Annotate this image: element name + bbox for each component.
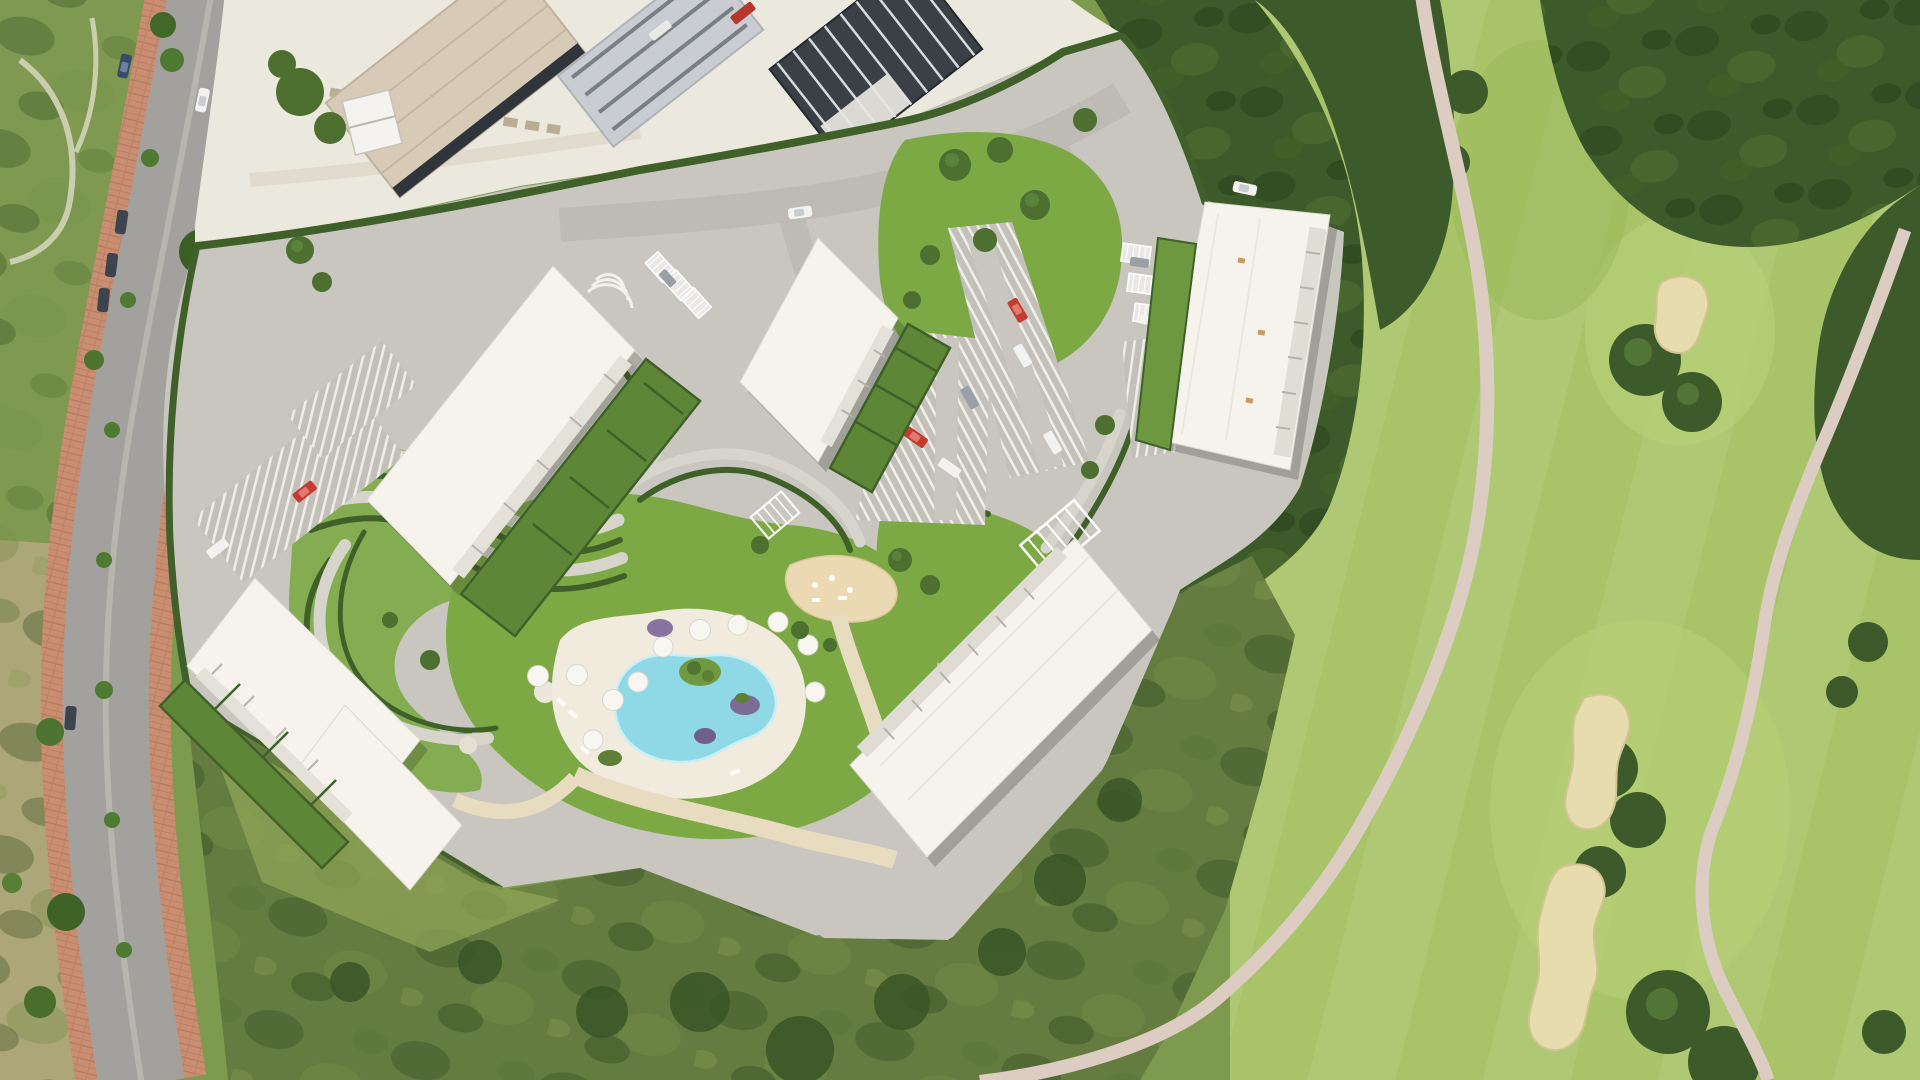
parasol	[728, 615, 748, 635]
car-dark	[64, 706, 77, 731]
pool-island	[679, 658, 721, 686]
site-plan-render	[0, 0, 1920, 1080]
parasol	[805, 682, 825, 702]
parasol	[528, 666, 549, 687]
parasol	[690, 620, 711, 641]
parasol	[768, 612, 788, 632]
pool-island-bush	[702, 670, 714, 682]
garden-plaza	[459, 736, 477, 754]
aerial-photo	[0, 0, 1920, 1080]
parasol	[583, 730, 603, 750]
pool-island-bush	[687, 661, 701, 675]
parking-aisle	[945, 338, 948, 520]
parasol	[653, 637, 673, 657]
parasol	[603, 690, 624, 711]
parasol	[567, 665, 588, 686]
parasol	[628, 672, 648, 692]
